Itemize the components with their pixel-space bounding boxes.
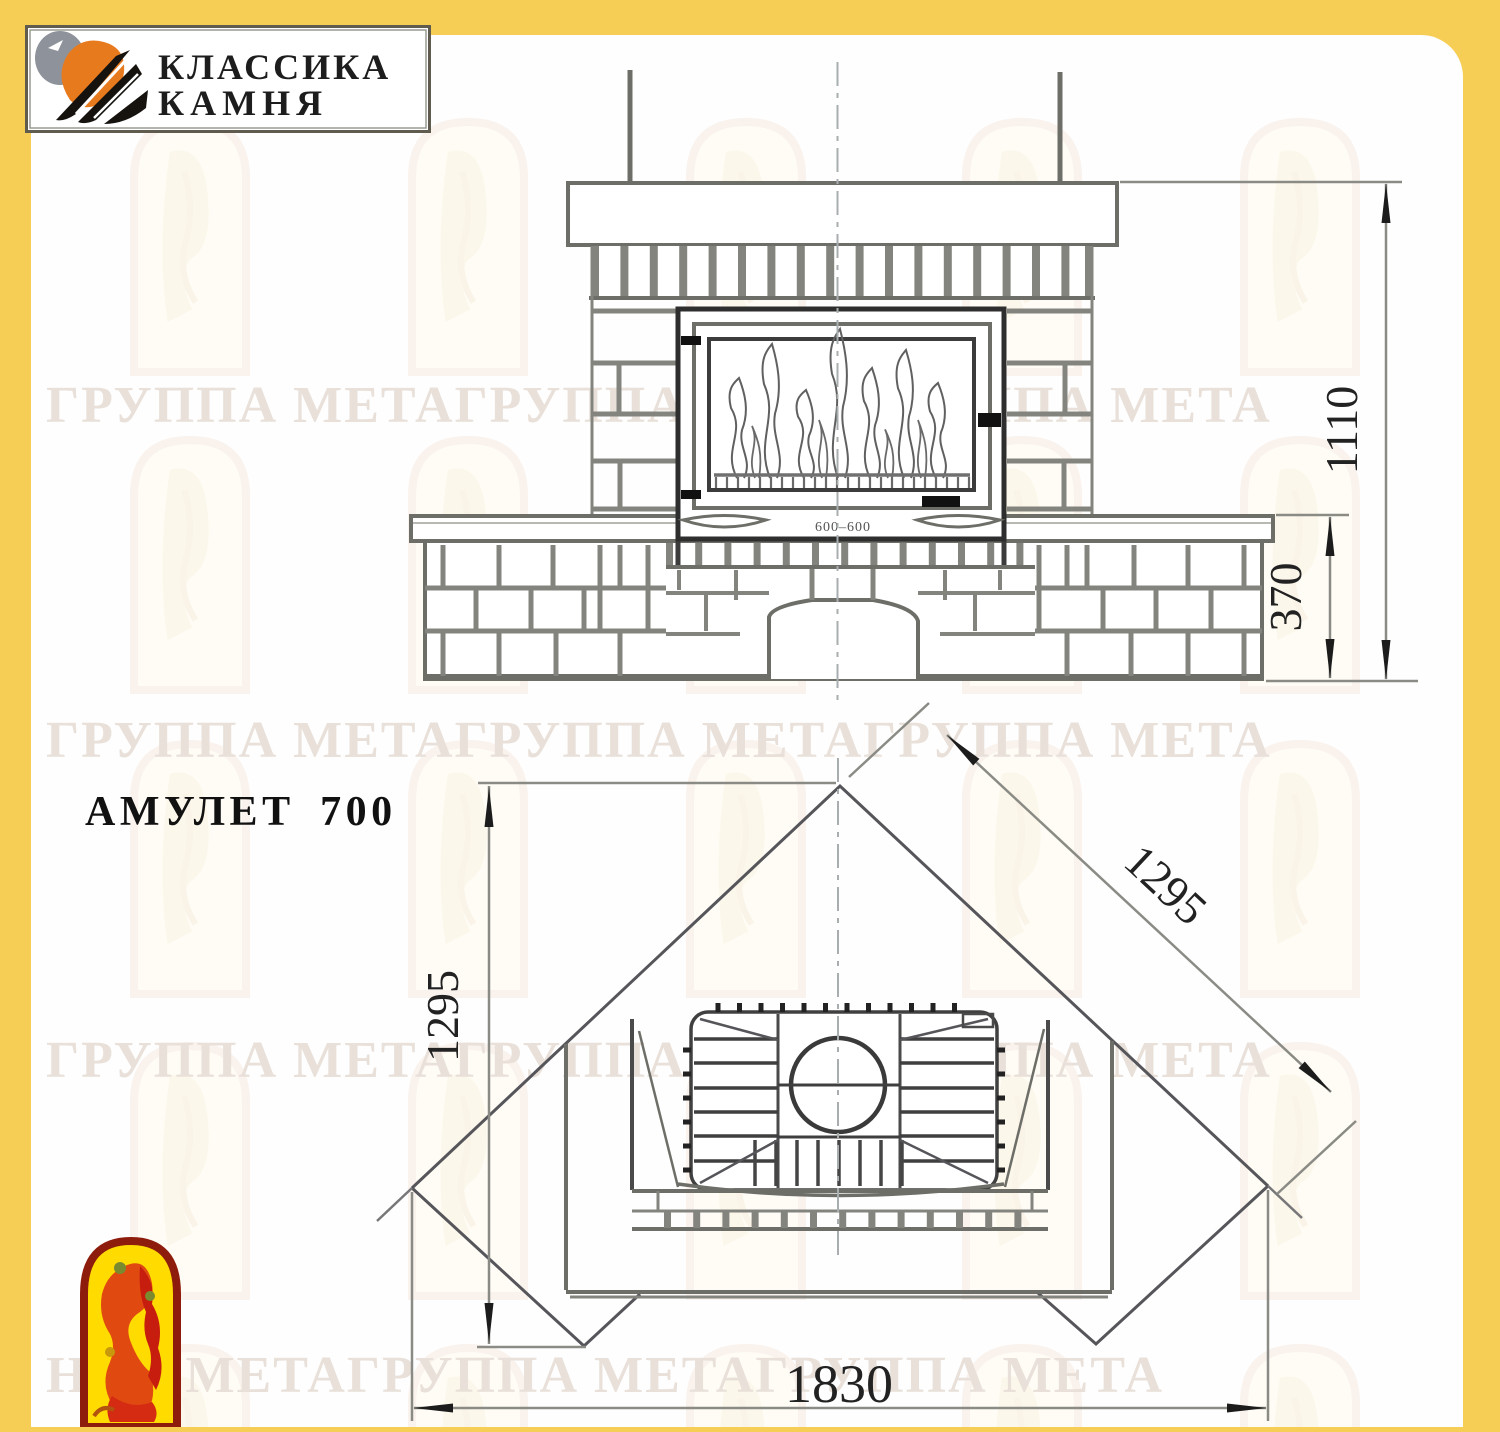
svg-text:1295: 1295 (417, 970, 468, 1062)
svg-text:АМУЛЕТ 700: АМУЛЕТ 700 (85, 789, 397, 835)
svg-text:КАМНЯ: КАМНЯ (158, 83, 328, 123)
svg-text:600–600: 600–600 (815, 520, 871, 535)
svg-text:ГРУППА МЕТАГРУППА МЕТАГРУППА М: ГРУППА МЕТАГРУППА МЕТАГРУППА МЕТА (46, 712, 1272, 769)
svg-text:ГРУППА МЕТАГРУППА МЕТАГРУППА М: ГРУППА МЕТАГРУППА МЕТАГРУППА МЕТА (46, 1032, 1272, 1089)
svg-text:1110: 1110 (1316, 386, 1367, 475)
svg-text:1295: 1295 (1115, 835, 1217, 935)
svg-text:1830: 1830 (785, 1354, 893, 1414)
svg-text:ННА МЕТАГРУППА МЕТАГРУППА МЕТА: ННА МЕТАГРУППА МЕТАГРУППА МЕТА (46, 1347, 1164, 1404)
svg-text:370: 370 (1260, 563, 1311, 632)
svg-text:КЛАССИКА: КЛАССИКА (158, 47, 391, 87)
svg-text:ГРУППА МЕТАГРУППА МЕТАГРУППА М: ГРУППА МЕТАГРУППА МЕТАГРУППА МЕТА (46, 377, 1272, 434)
